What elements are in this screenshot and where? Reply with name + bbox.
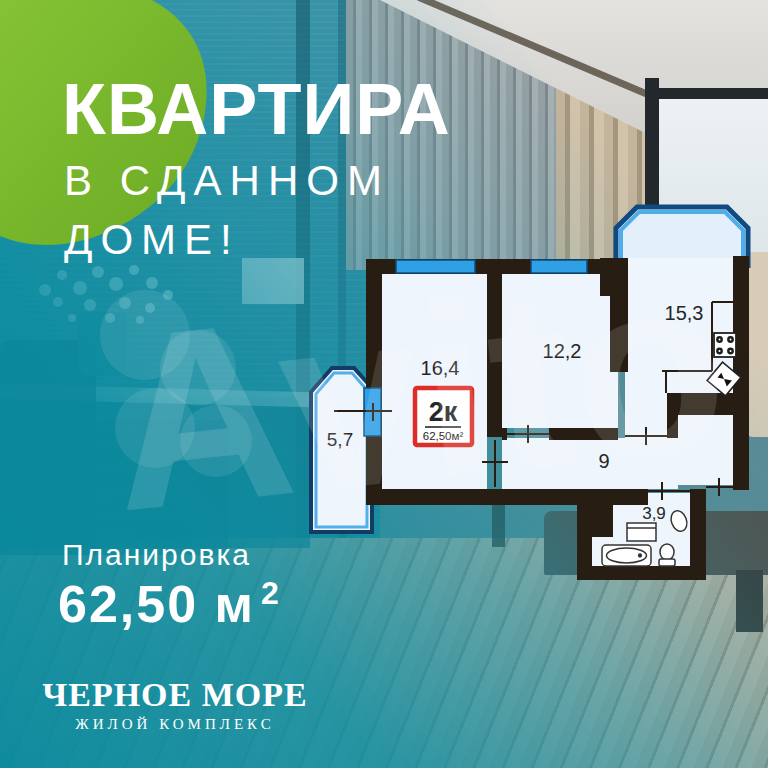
label-bathroom: 3,9 — [642, 504, 666, 523]
label-living: 16,4 — [421, 357, 460, 379]
total-area: 62,50 м2 — [58, 574, 281, 634]
area-superscript: 2 — [261, 575, 281, 611]
plan-label: Планировка — [62, 538, 251, 572]
brand-logo: ЧЕРНОЕ МОРЕ ЖИЛОЙ КОМПЛЕКС — [40, 676, 310, 733]
window-living-icon — [396, 260, 475, 273]
ad-canvas: КВАРТИРА В СДАННОМ ДОМЕ! — [0, 0, 768, 768]
brand-name: ЧЕРНОЕ МОРЕ — [40, 676, 310, 714]
balcony — [311, 368, 372, 532]
label-kitchen: 15,3 — [665, 302, 704, 324]
label-balcony: 5,7 — [327, 429, 353, 450]
badge-rooms: 2к — [429, 397, 458, 427]
area-value: 62,50 м — [58, 575, 255, 633]
label-hallway: 9 — [598, 450, 609, 472]
type-badge: 2к 62,50м² — [415, 388, 472, 445]
watermark-dot — [180, 405, 252, 477]
toilet-icon — [660, 544, 674, 560]
floor-plan: 16,4 12,2 15,3 5,7 9 3,9 2к 62,50м² — [0, 0, 768, 768]
badge-area: 62,50м² — [423, 430, 464, 442]
brand-tagline: ЖИЛОЙ КОМПЛЕКС — [40, 716, 310, 733]
window-bedroom-icon — [531, 260, 587, 273]
label-bedroom: 12,2 — [543, 340, 582, 362]
stove-icon — [714, 333, 736, 357]
washer-icon — [627, 523, 656, 541]
